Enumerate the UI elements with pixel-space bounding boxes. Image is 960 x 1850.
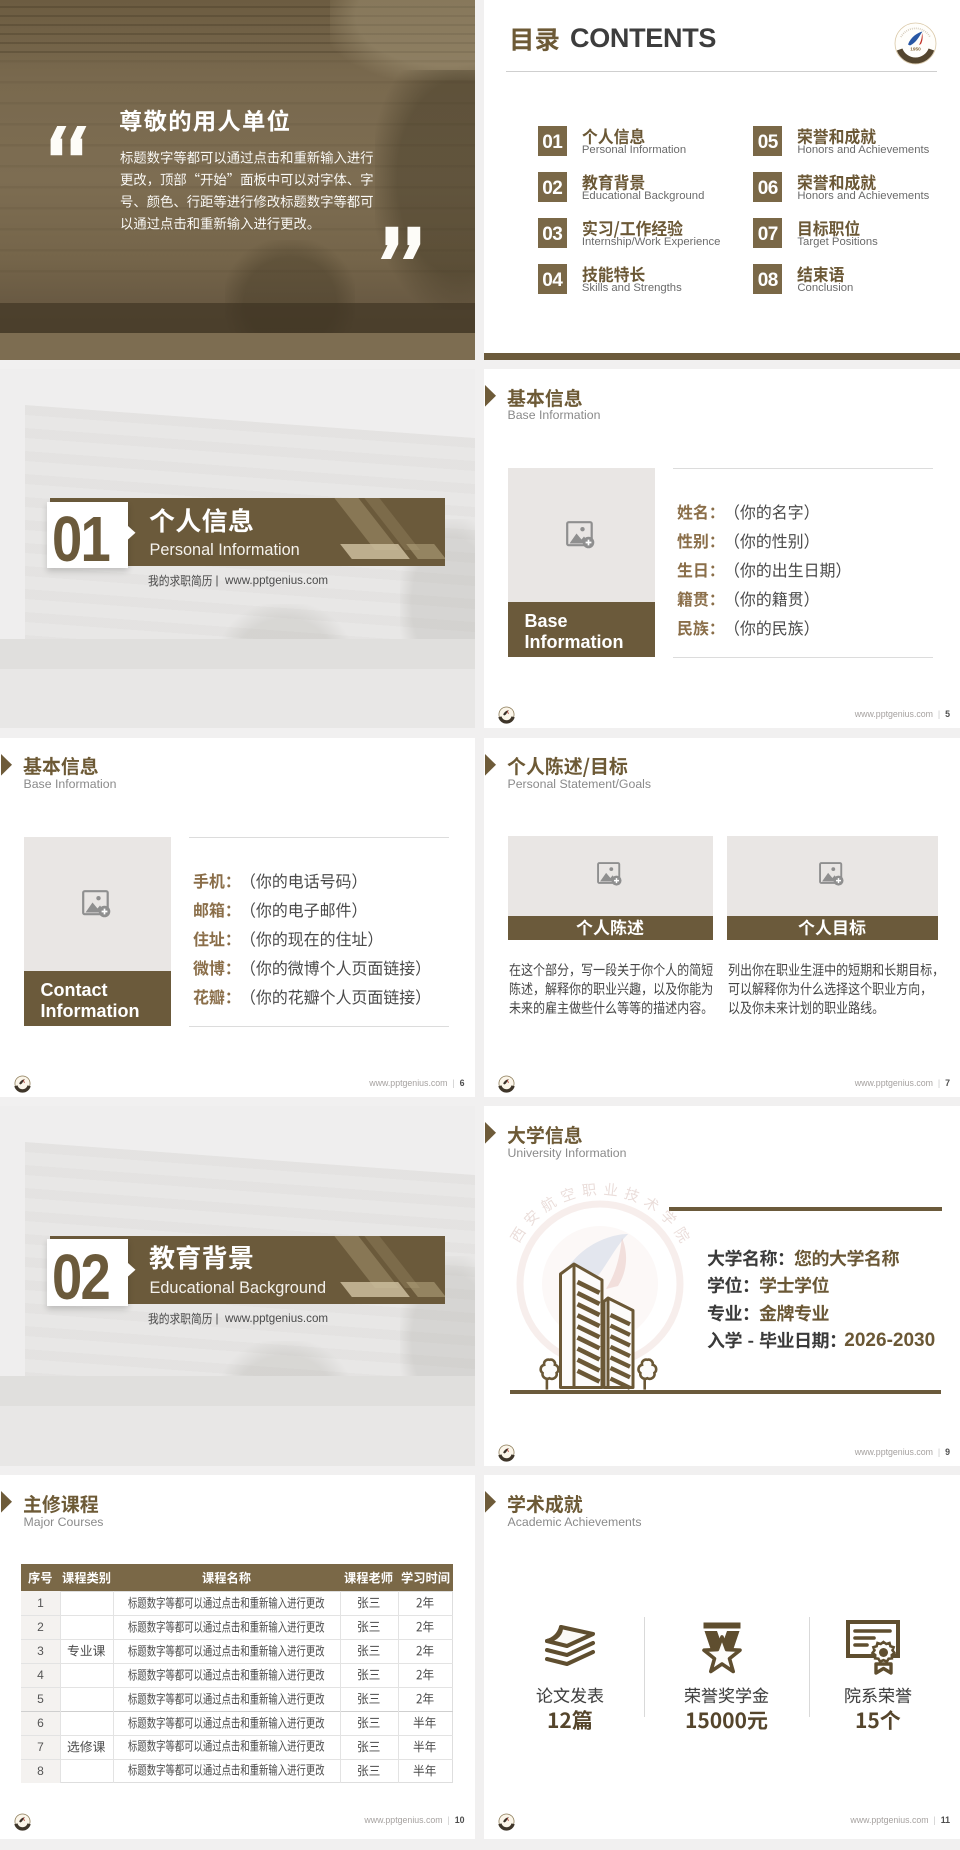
svg-text:1950: 1950	[910, 47, 921, 53]
